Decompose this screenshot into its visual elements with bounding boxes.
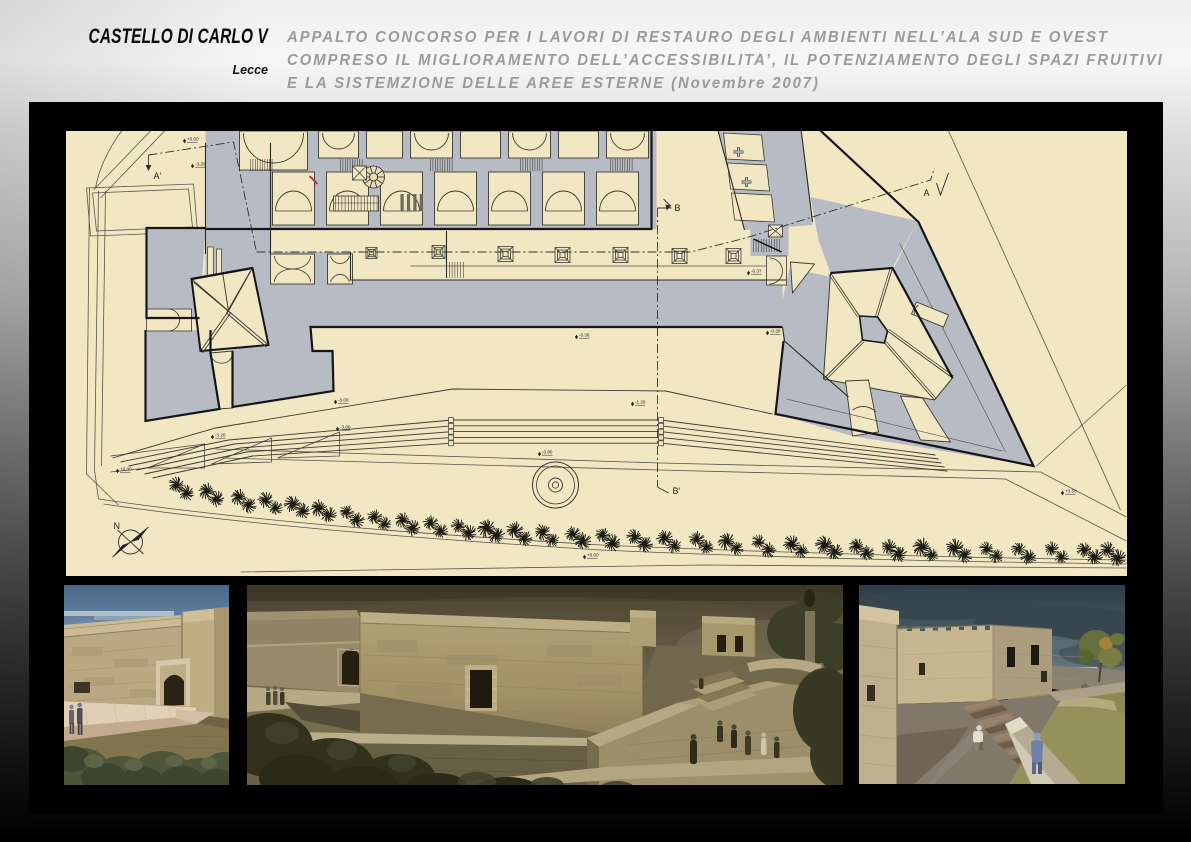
svg-text:B: B	[674, 203, 680, 213]
svg-text:+0.00: +0.00	[120, 467, 132, 472]
svg-text:-3.00: -3.00	[340, 425, 351, 430]
svg-text:-1.20: -1.20	[635, 400, 646, 405]
svg-text:A': A'	[153, 171, 161, 181]
svg-text:N: N	[113, 521, 120, 531]
svg-text:+0.00: +0.00	[187, 137, 199, 142]
svg-text:-0.80: -0.80	[542, 450, 553, 455]
svg-text:A: A	[923, 188, 929, 198]
svg-text:-3.20: -3.20	[215, 433, 226, 438]
svg-text:-3.20: -3.20	[195, 162, 206, 167]
svg-text:-0.30: -0.30	[770, 329, 781, 334]
svg-text:-0.37: -0.37	[751, 269, 762, 274]
svg-text:-3.00: -3.00	[338, 398, 349, 403]
svg-text:+0.50: +0.50	[1065, 489, 1077, 494]
svg-text:+0.00: +0.00	[587, 553, 599, 558]
svg-text:-0.36: -0.36	[579, 333, 590, 338]
svg-text:B': B'	[672, 486, 680, 496]
